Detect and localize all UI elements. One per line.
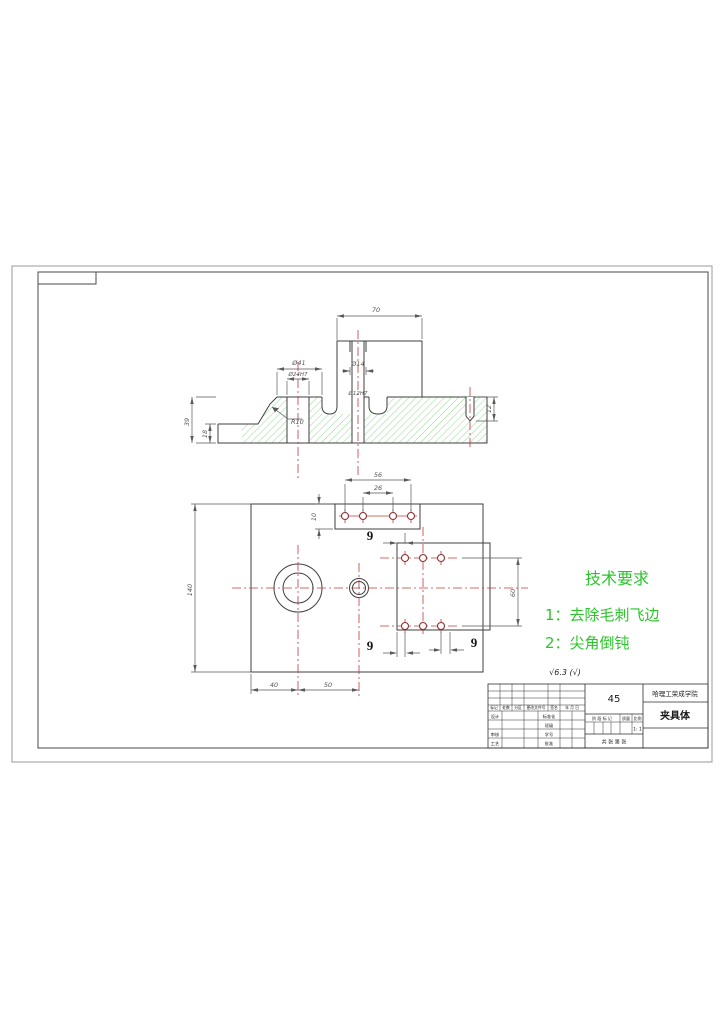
dim-dia41: Ø41 [291, 359, 305, 367]
frame-corner-box [38, 272, 96, 284]
rev-count: 处数 [502, 705, 510, 710]
surface-finish-note: √6.3 (√) [549, 668, 581, 677]
inner-frame [38, 272, 708, 748]
design-label: 设计 [491, 713, 499, 720]
dim-9-bottom-left: 9 [367, 638, 374, 653]
dim-18: 18 [201, 430, 209, 438]
scale-value: 1: 1 [633, 727, 642, 733]
class-label: 班级 [545, 722, 554, 729]
mass-label: 质量 [622, 715, 630, 721]
dim-dia24h7: Ø24H7 [288, 371, 308, 378]
tech-requirements: 技术要求 1：去除毛刺飞边 2：尖角倒钝 [545, 569, 660, 652]
dim-9-bottom-right: 9 [471, 635, 478, 650]
tech-requirement-1: 1：去除毛刺飞边 [545, 606, 660, 624]
dim-56: 56 [374, 471, 382, 479]
dim-39: 39 [183, 418, 191, 426]
rev-zone: 分区 [514, 705, 522, 710]
cad-drawing: 70 Ø41 Ø24H7 Ø14 Ø12H7 R10 39 [0, 0, 724, 1024]
dim-40: 40 [270, 681, 278, 689]
title-block: 哈理工荣成学院 夹具体 45 阶 段 标 记 质量 比例 1: 1 共 张 第 … [488, 684, 708, 748]
dim-10: 10 [310, 513, 318, 521]
dim-r10: R10 [291, 418, 304, 426]
tab-holes [339, 509, 417, 523]
drawing-sheet: 70 Ø41 Ø24H7 Ø14 Ø12H7 R10 39 [0, 0, 724, 1024]
rev-doc-no: 更改文件号 [527, 705, 546, 710]
dim-50: 50 [324, 681, 332, 689]
approve-label: 批准 [545, 740, 553, 747]
school-name: 哈理工荣成学院 [652, 689, 698, 698]
dim-dia14: Ø14 [350, 360, 364, 368]
sheet-count: 共 张 第 张 [602, 739, 627, 746]
rev-sign: 签名 [550, 705, 558, 710]
check-label: 审核 [491, 731, 500, 738]
tech-requirements-title: 技术要求 [585, 569, 649, 588]
dim-140: 140 [186, 584, 194, 596]
tech-requirement-2: 2：尖角倒钝 [545, 634, 630, 652]
process-label: 工艺 [491, 741, 499, 746]
student-no-label: 学号 [545, 731, 553, 738]
part-name: 夹具体 [660, 709, 691, 722]
dim-12: 12 [485, 405, 493, 413]
standardization-label: 标准化 [543, 713, 556, 720]
plan-centerlines [232, 545, 528, 697]
section-view: 70 Ø41 Ø24H7 Ø14 Ø12H7 R10 39 [183, 306, 498, 478]
stage-label: 阶 段 标 记 [592, 715, 612, 721]
dim-26: 26 [374, 484, 382, 492]
rev-date: 年 月 日 [565, 705, 579, 710]
dim-9-top: 9 [367, 528, 374, 543]
material-grade: 45 [608, 694, 621, 705]
scale-label: 比例 [634, 715, 642, 721]
rev-mark: 标记 [490, 705, 498, 710]
plan-view: 56 26 10 140 60 40 50 9 [186, 471, 528, 697]
dim-70: 70 [372, 306, 380, 314]
dim-60: 60 [509, 589, 517, 597]
dim-dia12h7: Ø12H7 [348, 390, 368, 397]
